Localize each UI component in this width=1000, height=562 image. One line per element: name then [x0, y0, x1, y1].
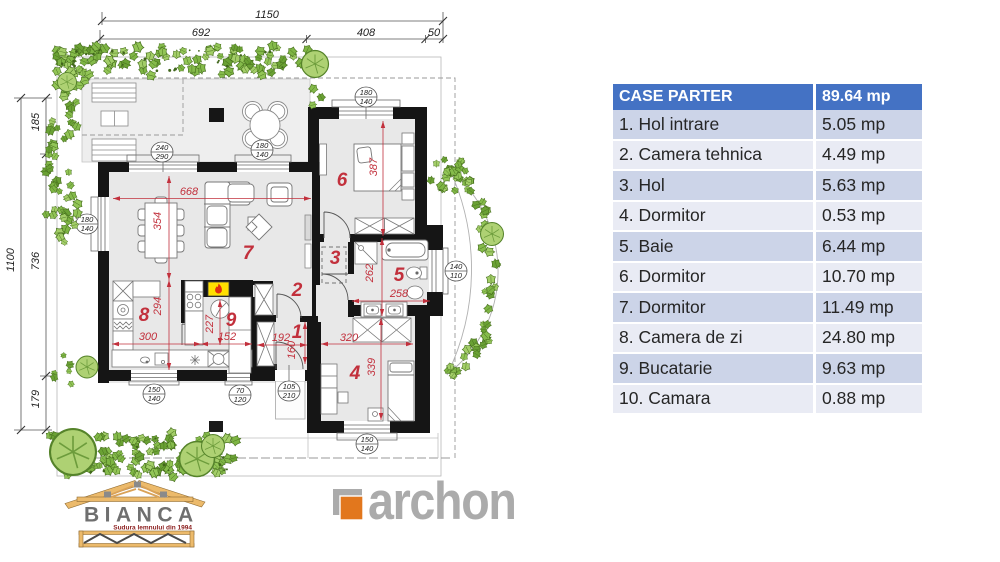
svg-text:262: 262	[364, 264, 376, 283]
svg-text:105: 105	[283, 382, 296, 391]
svg-text:8: 8	[139, 305, 150, 326]
svg-text:140: 140	[148, 394, 161, 403]
svg-text:archon: archon	[368, 471, 516, 530]
svg-text:1: 1	[292, 322, 303, 343]
svg-text:300: 300	[139, 331, 158, 343]
svg-text:354: 354	[152, 212, 164, 230]
svg-text:258: 258	[389, 288, 409, 300]
svg-text:140: 140	[361, 444, 374, 453]
svg-text:736: 736	[30, 251, 42, 270]
svg-text:2: 2	[291, 280, 303, 301]
svg-text:5: 5	[394, 265, 405, 286]
svg-text:140: 140	[450, 262, 463, 271]
svg-text:180: 180	[81, 215, 94, 224]
svg-text:240: 240	[155, 143, 169, 152]
svg-text:408: 408	[357, 27, 376, 39]
svg-text:294: 294	[152, 297, 164, 316]
svg-text:140: 140	[360, 97, 373, 106]
svg-text:290: 290	[155, 152, 169, 161]
svg-text:110: 110	[450, 271, 463, 280]
svg-text:1150: 1150	[255, 9, 280, 21]
svg-text:339: 339	[366, 358, 378, 376]
svg-text:692: 692	[192, 27, 210, 39]
svg-text:6: 6	[337, 170, 348, 191]
svg-text:BIANCA: BIANCA	[84, 504, 199, 527]
svg-text:70: 70	[236, 386, 245, 395]
svg-text:227: 227	[204, 314, 216, 334]
svg-text:668: 668	[180, 186, 199, 198]
svg-text:120: 120	[234, 395, 247, 404]
svg-text:9: 9	[226, 310, 237, 331]
svg-text:152: 152	[218, 331, 236, 343]
svg-text:140: 140	[81, 224, 94, 233]
svg-text:180: 180	[360, 88, 373, 97]
svg-text:4: 4	[349, 363, 361, 384]
svg-text:7: 7	[243, 243, 255, 264]
svg-text:320: 320	[340, 332, 359, 344]
svg-text:50: 50	[428, 27, 441, 39]
svg-text:Sudura lemnului din 1994: Sudura lemnului din 1994	[113, 525, 192, 532]
svg-text:185: 185	[30, 112, 42, 131]
svg-text:210: 210	[282, 391, 296, 400]
svg-text:1100: 1100	[5, 247, 17, 272]
svg-text:179: 179	[30, 390, 42, 408]
svg-text:387: 387	[368, 157, 380, 176]
svg-text:140: 140	[256, 150, 269, 159]
svg-text:3: 3	[330, 248, 341, 269]
svg-text:180: 180	[256, 141, 269, 150]
svg-text:150: 150	[361, 435, 374, 444]
svg-text:150: 150	[148, 385, 161, 394]
